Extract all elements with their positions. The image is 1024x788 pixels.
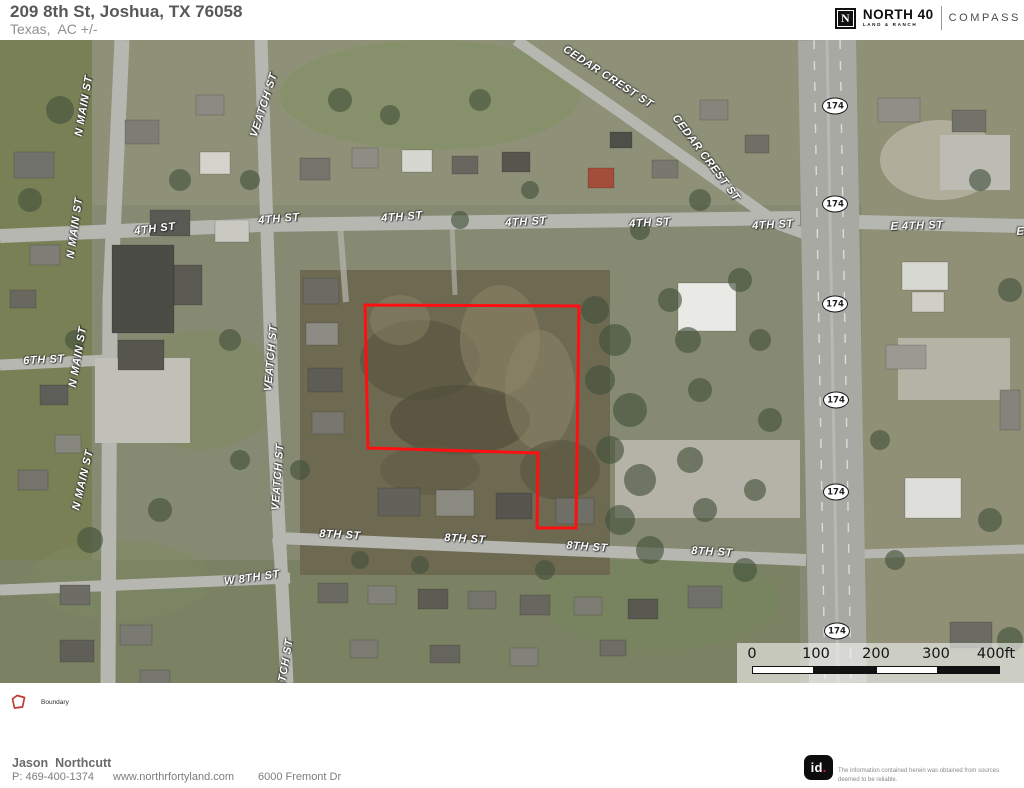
street-label: 8TH ST <box>691 545 733 559</box>
street-label: 6TH ST <box>23 353 65 367</box>
street-label: 4TH ST <box>752 218 794 232</box>
brand-divider <box>941 6 942 30</box>
highway-174-shield-icon: 174 <box>822 296 848 313</box>
highway-174-shield-icon: 174 <box>824 623 850 640</box>
street-label: 8TH ST <box>444 532 486 546</box>
page-title: 209 8th St, Joshua, TX 76058 <box>10 2 242 22</box>
scale-tick: 0 <box>747 646 756 662</box>
scale-tick: 100 <box>802 646 830 662</box>
map-scale-bar: 0100200300400ft <box>737 643 1024 683</box>
land-id-logo: id. <box>804 755 833 780</box>
brand-name: NORTH 40 <box>863 8 934 22</box>
scale-tick: 400ft <box>977 646 1015 662</box>
satellite-imagery <box>0 40 1024 683</box>
brand-tagline: LAND & RANCH <box>863 23 934 28</box>
agent-phone: P: 469-400-1374 <box>12 771 94 783</box>
scale-segment <box>938 666 1000 674</box>
scale-segment <box>814 666 876 674</box>
scale-tick: 200 <box>862 646 890 662</box>
legend: Boundary <box>10 694 69 710</box>
page: 209 8th St, Joshua, TX 76058 Texas, AC +… <box>0 0 1024 788</box>
highway-174-shield-icon: 174 <box>822 98 848 115</box>
north40-badge-icon: N <box>835 8 856 29</box>
page-subtitle: Texas, AC +/- <box>10 21 98 37</box>
street-label: 4TH ST <box>629 216 671 230</box>
website-link[interactable]: www.northrfortyland.com <box>113 771 234 783</box>
highway-174-shield-icon: 174 <box>822 196 848 213</box>
brand-logo: N NORTH 40 LAND & RANCH COMPASS <box>835 6 1021 30</box>
street-label: E 4TH ST <box>1016 224 1024 238</box>
disclaimer-text: The information contained herein was obt… <box>838 749 1022 788</box>
aerial-map[interactable]: CEDAR CREST STCEDAR CREST ST4TH ST4TH ST… <box>0 40 1024 683</box>
street-label: E 4TH ST <box>890 219 943 233</box>
scale-segment <box>876 666 938 674</box>
street-label: 8TH ST <box>319 528 361 542</box>
highway-174-shield-icon: 174 <box>823 392 849 409</box>
agent-name: Jason Northcutt <box>12 756 111 770</box>
brand-partner: COMPASS <box>949 12 1021 24</box>
boundary-legend-icon <box>10 694 27 710</box>
office-address: 6000 Fremont Dr <box>258 771 341 783</box>
boundary-legend-label: Boundary <box>41 699 69 706</box>
street-label: 4TH ST <box>505 215 547 229</box>
scale-segment <box>752 666 814 674</box>
highway-174-shield-icon: 174 <box>823 484 849 501</box>
scale-tick: 300 <box>922 646 950 662</box>
